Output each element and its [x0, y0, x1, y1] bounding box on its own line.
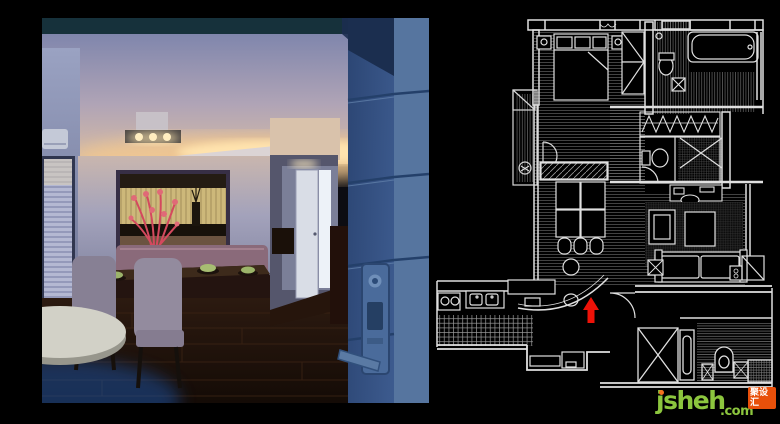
hall-cabinet [272, 228, 294, 254]
composite-image: jsheh .com 聚设汇 [0, 0, 780, 424]
watermark-brand: jsheh [656, 386, 725, 415]
entry-door [338, 18, 429, 403]
vase-silhouette [192, 202, 200, 226]
bed [554, 34, 608, 100]
site-watermark: jsheh .com 聚设汇 [648, 389, 776, 423]
wardrobe [622, 32, 644, 94]
toilet-2 [652, 149, 668, 167]
vent-grille [662, 21, 690, 29]
window-blinds [42, 156, 75, 308]
island-counter [508, 280, 555, 294]
watermark-j-dot [659, 390, 664, 395]
red-arrow-marker [583, 297, 599, 323]
watermark-badge: 聚设汇 [748, 387, 776, 409]
interior-photo [42, 18, 429, 403]
entry-door-swing [610, 293, 635, 318]
closet [640, 112, 720, 136]
nightstand-left [537, 36, 551, 49]
far-doorway-light [319, 170, 331, 288]
dining-table-plan [556, 182, 605, 237]
hall-downlight [290, 160, 318, 168]
air-conditioner [42, 129, 68, 149]
floor-plan [430, 10, 775, 402]
door-face-band [394, 18, 429, 403]
round-stool [563, 259, 579, 275]
dining-chairs-plan [558, 238, 603, 254]
guest-toilet [715, 347, 733, 372]
hanger-zigzag [642, 116, 718, 132]
kitchen-tile-floor [437, 315, 533, 346]
entry-step [530, 356, 560, 366]
coffee-table [685, 212, 715, 246]
